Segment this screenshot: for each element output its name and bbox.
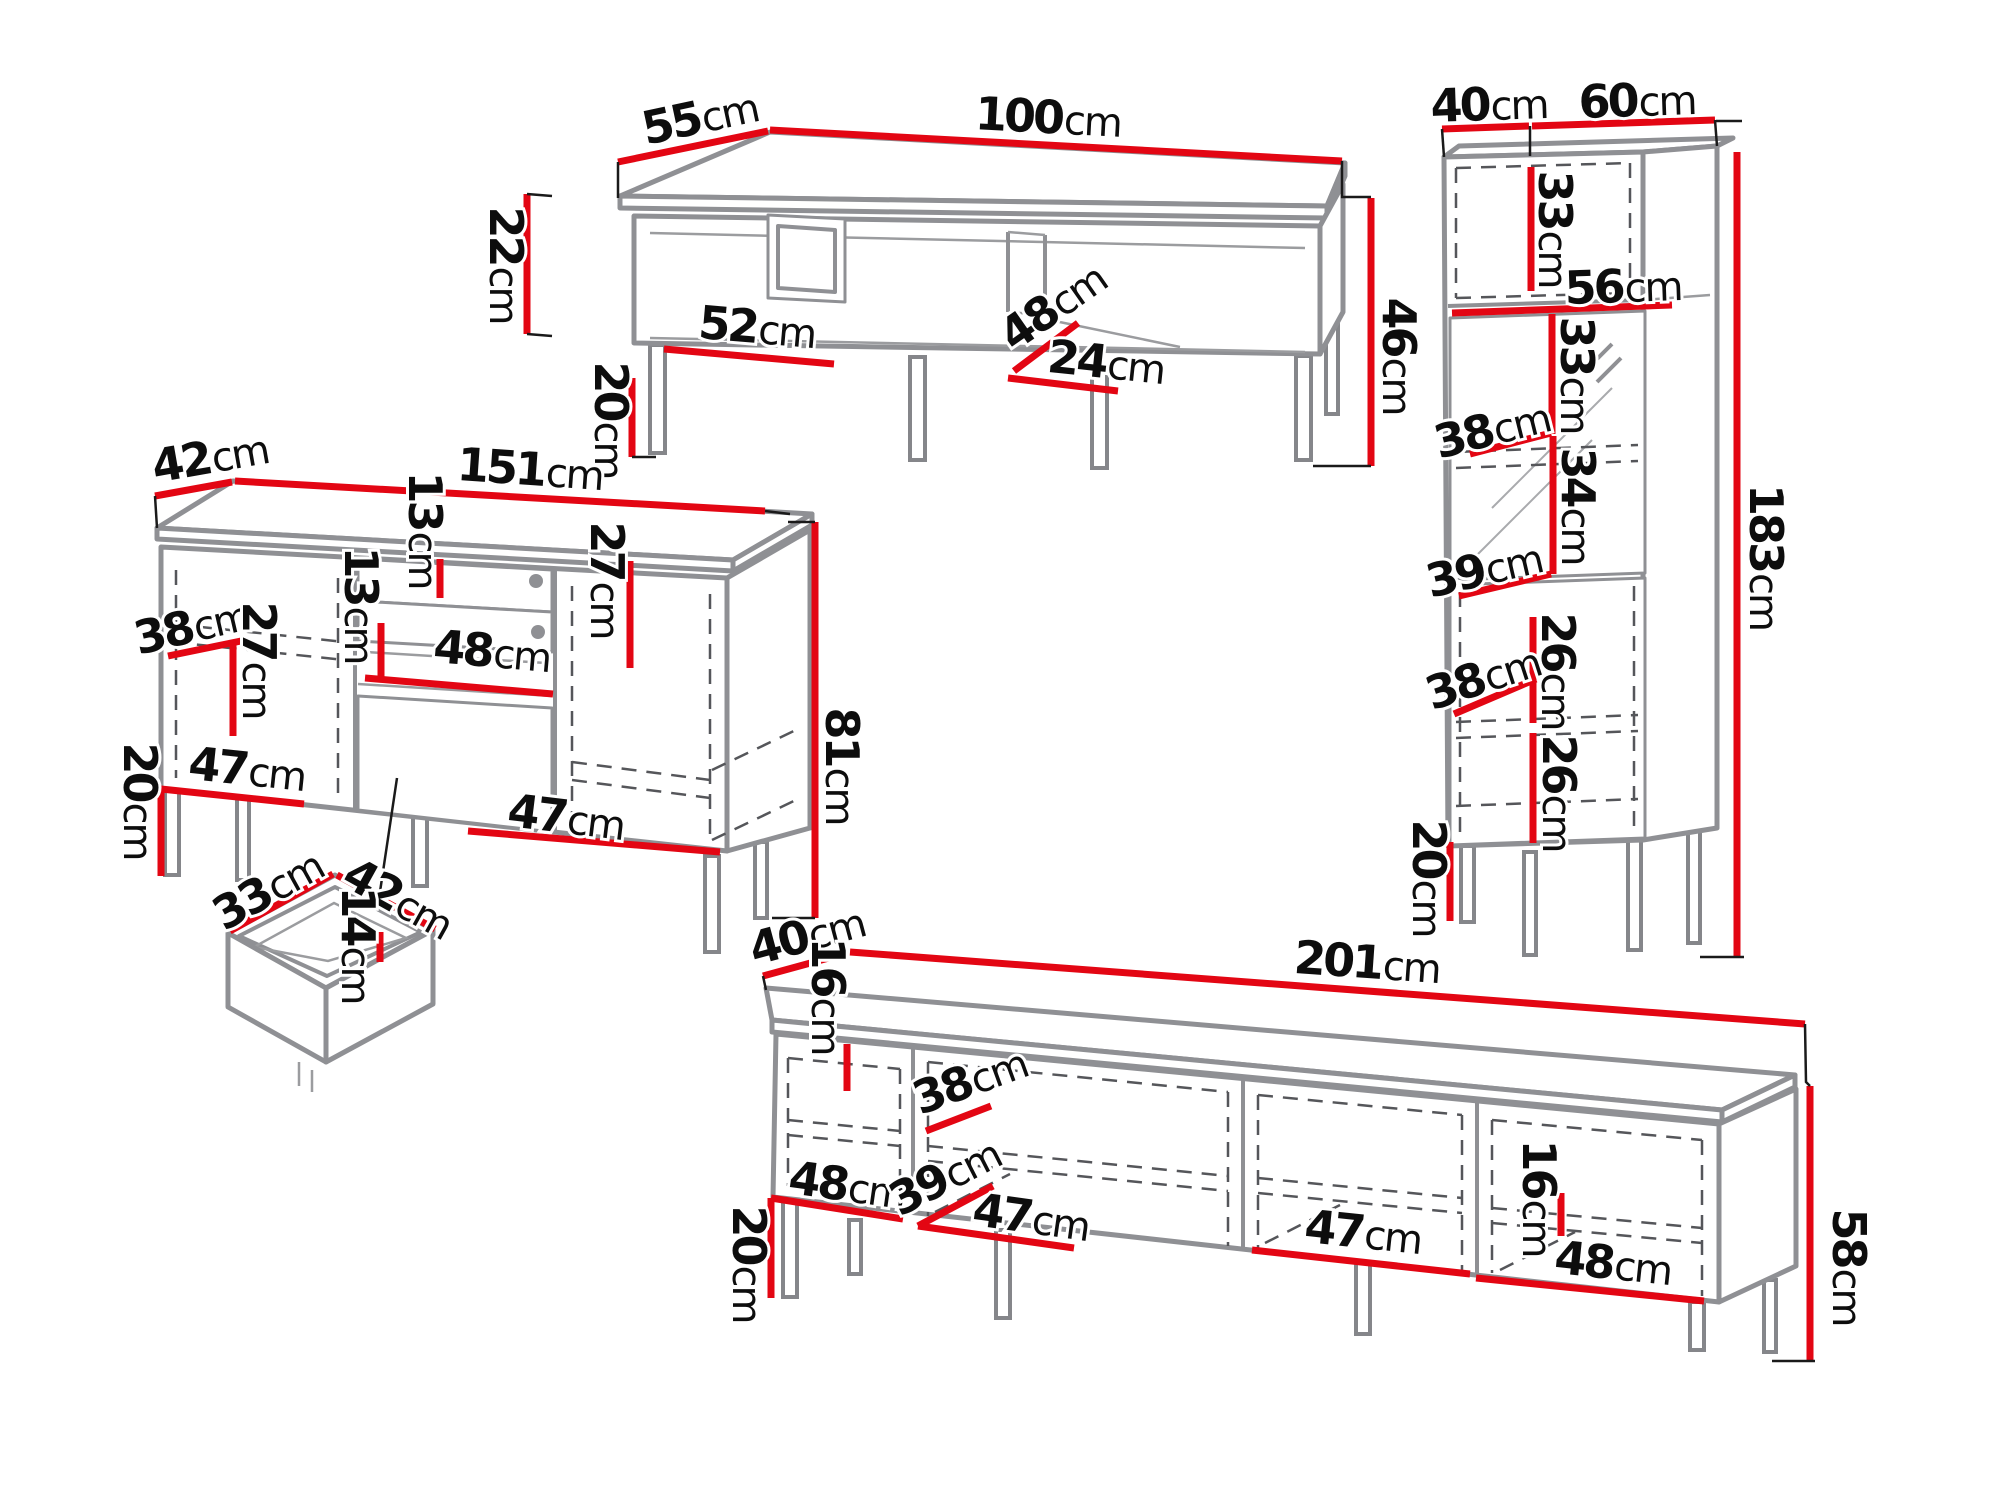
coffee-table-drawing: 55cm 100cm 22cm 20cm 52cm 48cm 24cm 46cm: [479, 78, 1426, 478]
coffee-table-width-label: 100cm: [974, 86, 1123, 148]
tall-cabinet-legs: [1461, 831, 1700, 955]
tall-cabinet-width-label: 60cm: [1578, 71, 1697, 129]
coffee-table-total-height-label: 46cm: [1372, 298, 1426, 415]
tv-stand-width-label: 201cm: [1292, 930, 1441, 994]
tv-stand-drawing: 40cm 201cm 16cm 38cm 48cm 39cm 47cm 47cm…: [722, 894, 1876, 1361]
tv-stand-total-height-label: 58cm: [1822, 1209, 1876, 1326]
sideboard-drawing: 42cm 151cm 13cm 13cm 38cm 27cm 27cm 48cm…: [113, 420, 869, 952]
tall-cabinet-total-height-label: 183cm: [1739, 484, 1793, 630]
tall-cabinet-drawing: 40cm 60cm 33cm 56cm 33cm 38cm 34cm 39cm …: [1402, 71, 1793, 957]
furniture-dimension-diagram: 55cm 100cm 22cm 20cm 52cm 48cm 24cm 46cm: [0, 0, 1998, 1499]
sideboard-width-label: 151cm: [455, 437, 604, 501]
sideboard-total-height-label: 81cm: [815, 708, 869, 825]
tall-cabinet-depth-label: 40cm: [1430, 75, 1549, 133]
